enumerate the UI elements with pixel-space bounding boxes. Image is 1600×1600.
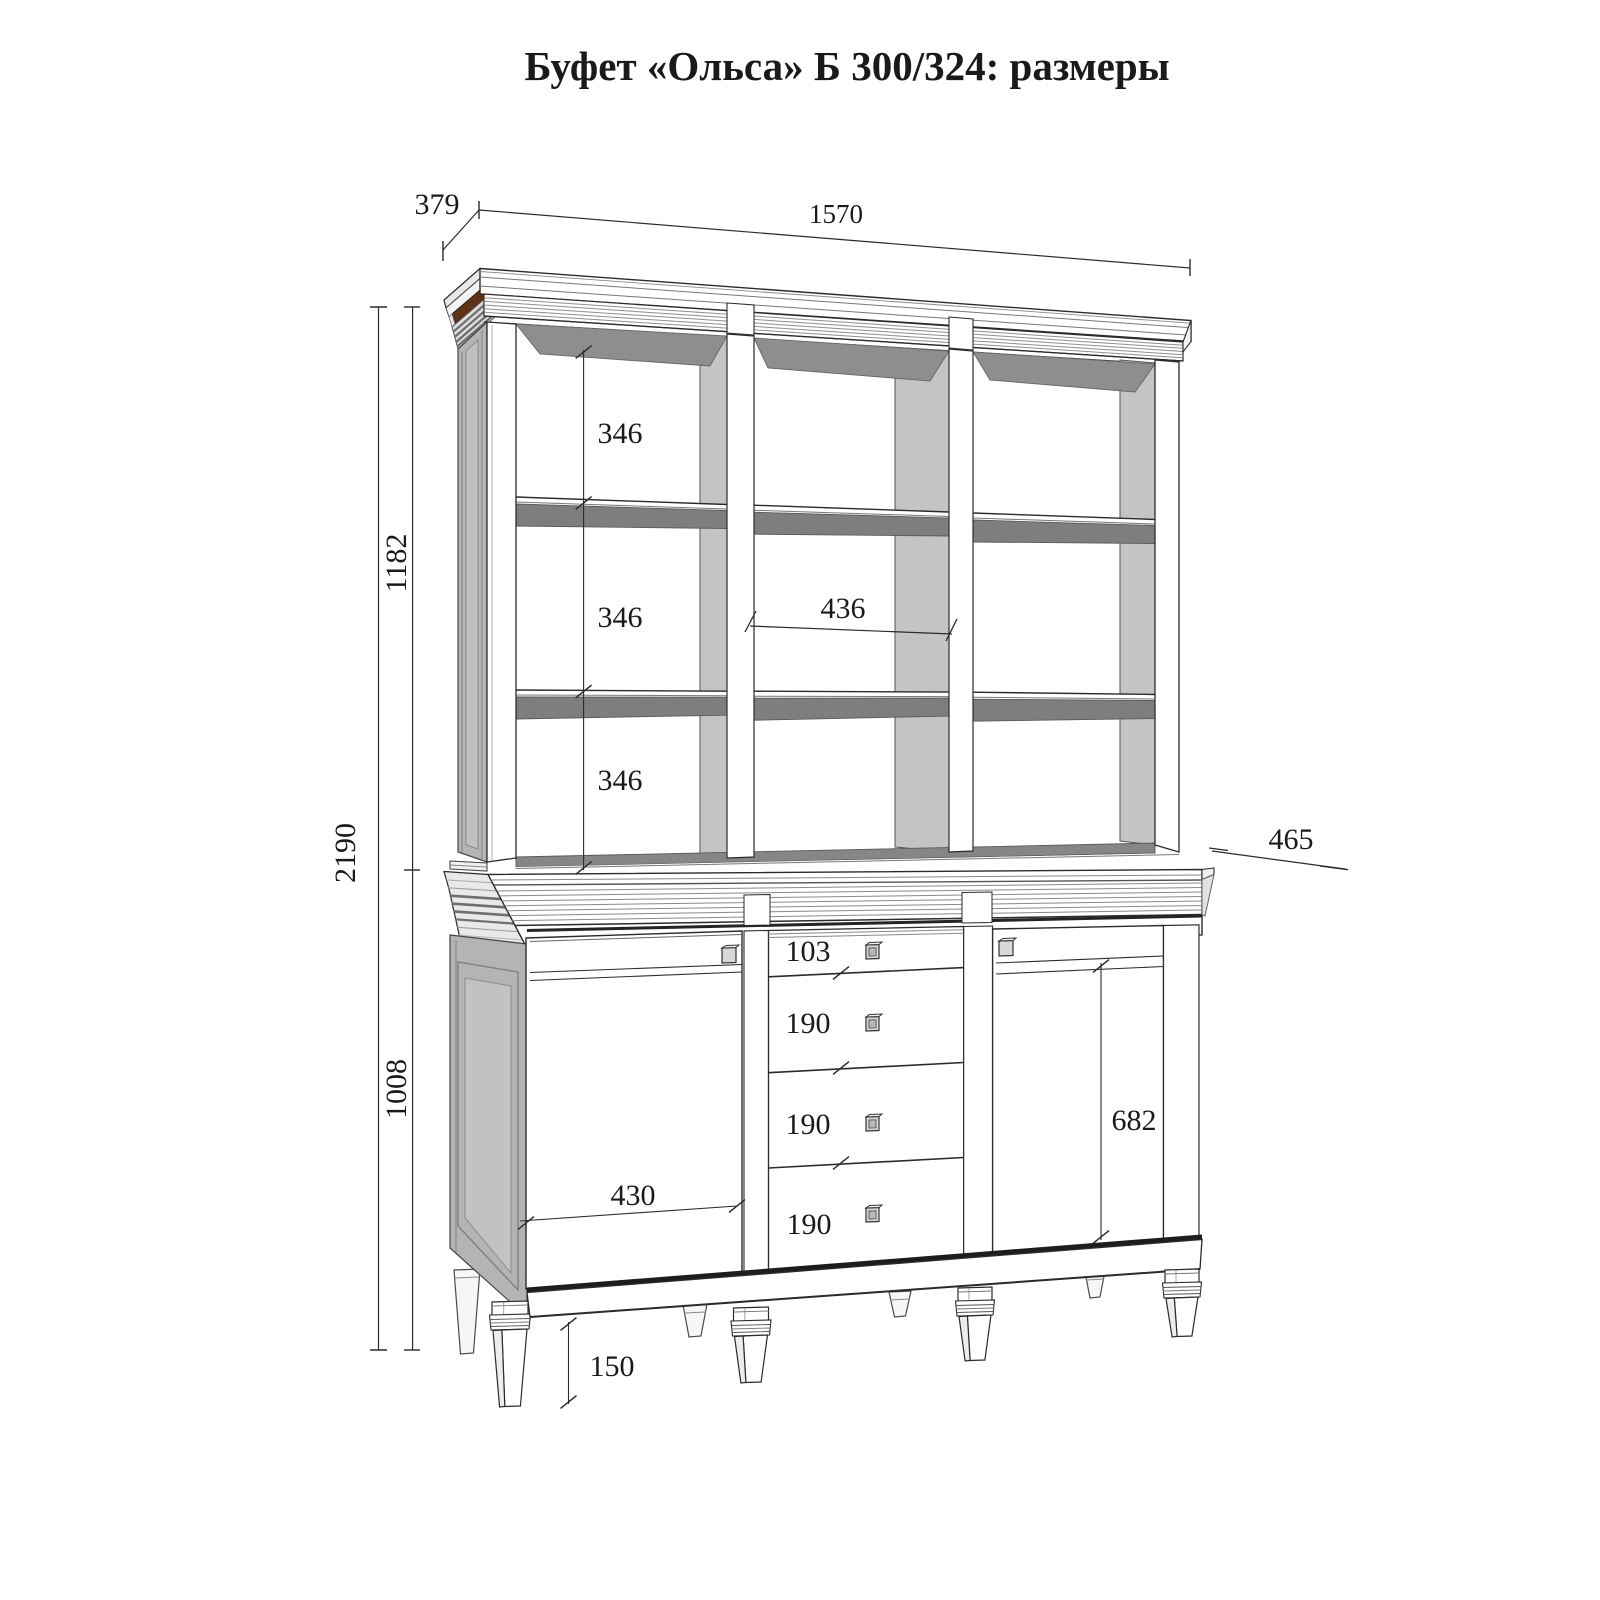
svg-text:682: 682 <box>1112 1104 1157 1137</box>
svg-text:1570: 1570 <box>809 199 863 229</box>
svg-text:Буфет «Ольса» Б 300/324: разме: Буфет «Ольса» Б 300/324: размеры <box>524 43 1169 89</box>
svg-text:190: 190 <box>786 1007 831 1040</box>
svg-text:379: 379 <box>415 188 460 221</box>
svg-text:103: 103 <box>786 935 831 968</box>
svg-text:465: 465 <box>1269 823 1314 856</box>
svg-text:430: 430 <box>611 1179 656 1212</box>
svg-text:190: 190 <box>786 1108 831 1141</box>
svg-text:436: 436 <box>821 592 866 625</box>
svg-text:346: 346 <box>598 417 643 450</box>
svg-text:346: 346 <box>598 601 643 634</box>
svg-text:2190: 2190 <box>329 823 362 883</box>
svg-text:190: 190 <box>787 1208 832 1241</box>
svg-text:150: 150 <box>590 1350 635 1383</box>
svg-text:1008: 1008 <box>380 1059 413 1119</box>
svg-text:346: 346 <box>598 764 643 797</box>
svg-text:1182: 1182 <box>380 534 413 593</box>
